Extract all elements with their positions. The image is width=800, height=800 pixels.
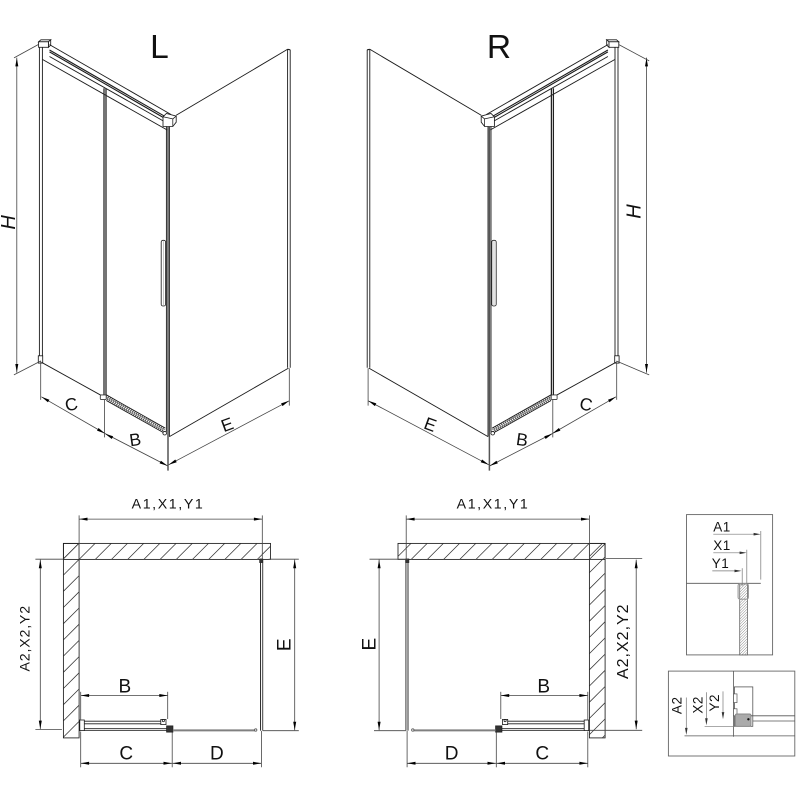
svg-text:A1,X1,Y1: A1,X1,Y1 bbox=[132, 497, 205, 513]
svg-text:H: H bbox=[623, 204, 645, 219]
svg-text:D: D bbox=[445, 743, 459, 764]
svg-text:L: L bbox=[150, 29, 169, 66]
svg-text:A1,X1,Y1: A1,X1,Y1 bbox=[457, 497, 530, 513]
svg-text:A2,X2,Y2: A2,X2,Y2 bbox=[17, 605, 33, 671]
svg-text:Y1: Y1 bbox=[712, 556, 730, 571]
svg-text:B: B bbox=[118, 677, 131, 698]
svg-text:A2,X2,Y2: A2,X2,Y2 bbox=[615, 603, 632, 679]
svg-text:R: R bbox=[487, 29, 511, 66]
svg-text:A1: A1 bbox=[713, 520, 731, 535]
svg-text:X2: X2 bbox=[691, 696, 706, 714]
svg-text:E: E bbox=[275, 638, 296, 651]
svg-text:B: B bbox=[537, 677, 550, 698]
svg-text:A2: A2 bbox=[670, 697, 685, 715]
svg-text:E: E bbox=[359, 638, 380, 651]
svg-text:C: C bbox=[535, 743, 549, 764]
svg-text:D: D bbox=[210, 743, 224, 764]
svg-text:X1: X1 bbox=[713, 538, 731, 553]
svg-text:C: C bbox=[119, 743, 133, 764]
svg-text:Y2: Y2 bbox=[707, 694, 722, 712]
svg-text:H: H bbox=[0, 215, 20, 230]
